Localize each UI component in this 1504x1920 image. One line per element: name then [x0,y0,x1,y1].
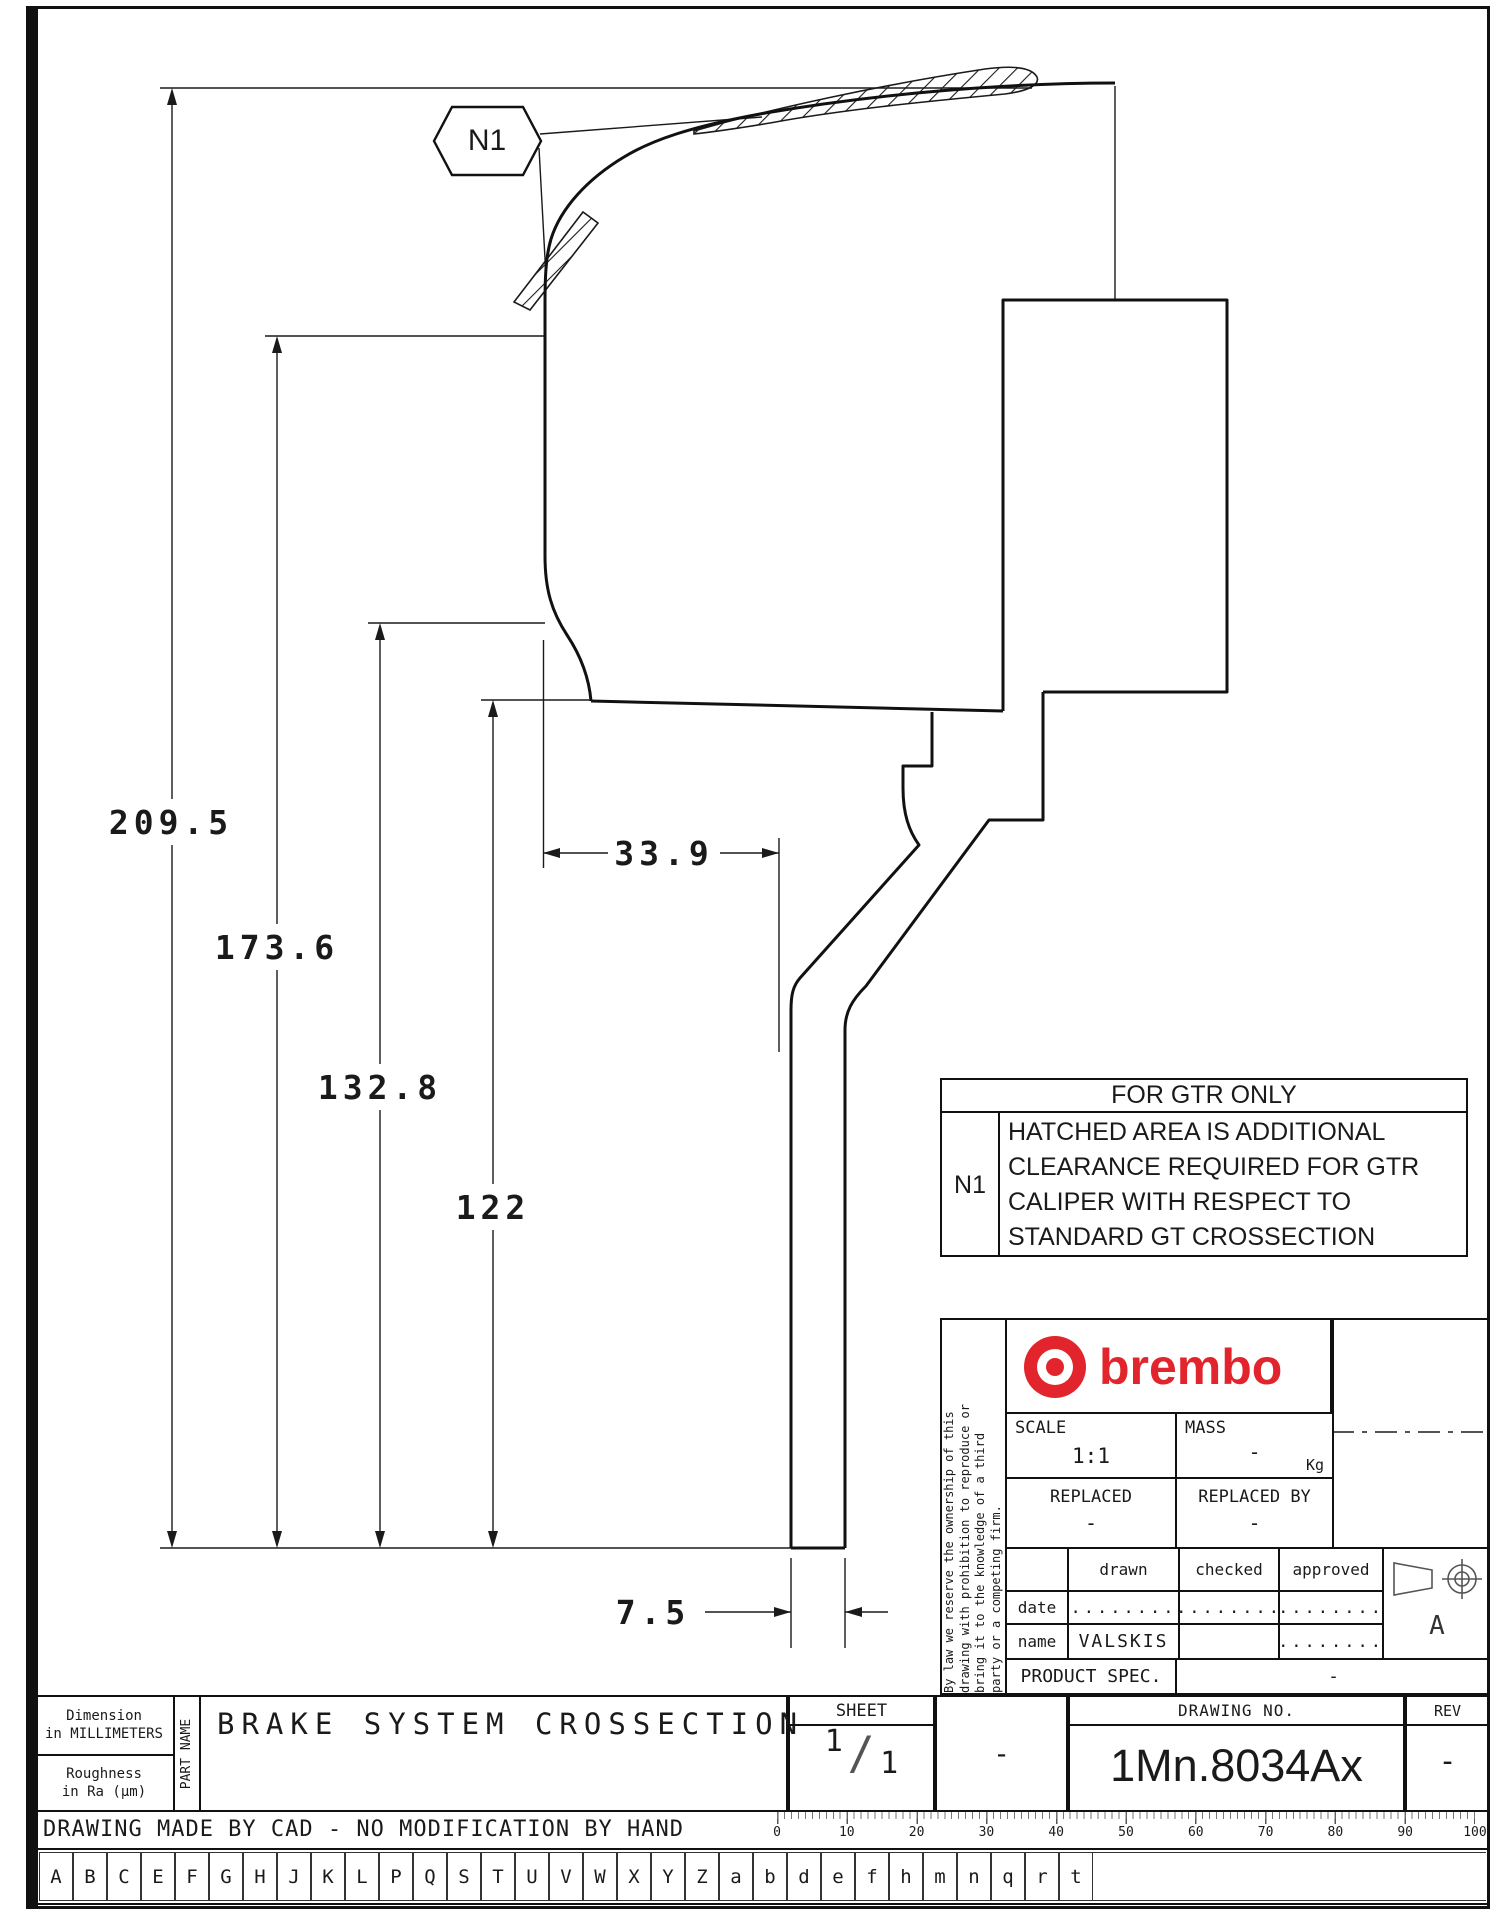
gtr-note-header: FOR GTR ONLY [942,1080,1466,1113]
sheet-slash: / [848,1728,875,1781]
letter-cell: J [277,1852,311,1901]
replaced-label: REPLACED [1007,1479,1175,1507]
titleblock-spare-zone [1332,1320,1490,1549]
letter-cell: Z [685,1852,719,1901]
product-spec-label: PRODUCT SPEC. [1007,1660,1177,1693]
date-checked: ........ [1180,1592,1280,1625]
sheet-value: 1 / 1 [790,1726,933,1769]
part-name-label: PART NAME [175,1696,199,1812]
dim-173-6: 173.6 [215,924,339,970]
svg-text:brembo: brembo [1099,1339,1282,1395]
gtr-note-table: FOR GTR ONLY N1 HATCHED AREA IS ADDITION… [940,1078,1468,1257]
letter-cell: Y [651,1852,685,1901]
part-name-label-cell: PART NAME [173,1695,201,1812]
letter-cell: K [311,1852,345,1901]
name-drawn: VALSKIS [1069,1625,1180,1660]
letter-cell: S [447,1852,481,1901]
ruler-number: 60 [1166,1825,1226,1845]
gtr-note-line: STANDARD GT CROSSECTION [1008,1220,1466,1255]
page-border-bottom [26,1906,1490,1909]
letter-cell: m [923,1852,957,1901]
dim-209-5: 209.5 [110,799,232,845]
mass-label: MASS [1177,1414,1332,1438]
dim-122: 122 [450,1184,536,1230]
letter-cell: n [957,1852,991,1901]
letters-row: A B C E F G H J K L P Q S T U V W X Y Z … [33,1850,1490,1905]
units-line1: Dimension [35,1707,173,1725]
disclaimer-line: party or a competing firm. [989,1320,1005,1693]
col-drawn: drawn [1069,1549,1180,1592]
letter-cell: U [515,1852,549,1901]
letter-cell: f [855,1852,889,1901]
drawing-no-value: 1Mn.8034Ax [1070,1726,1403,1792]
gtr-note-line: CALIPER WITH RESPECT TO [1008,1185,1466,1220]
dim-33-9: 33.9 [608,831,720,875]
name-approved: ........ [1280,1625,1382,1660]
sheet-num: 1 [825,1724,843,1759]
letter-cell: q [991,1852,1025,1901]
projection-symbol-icon [1384,1549,1490,1609]
ruler-number: 10 [817,1825,877,1845]
row-date-label: date [1007,1592,1069,1625]
mass-unit: Kg [1306,1456,1324,1474]
ruler-number: 30 [956,1825,1016,1845]
brembo-logo-cell: brembo brembo [1007,1320,1332,1414]
letter-cell: F [175,1852,209,1901]
footer-strip: Dimension in MILLIMETERS Roughness in Ra… [33,1695,1490,1812]
n1-callout-label: N1 [460,124,514,158]
scale-value: 1:1 [1007,1444,1175,1468]
rev-value: - [1407,1726,1488,1779]
ruler-number: 50 [1096,1825,1156,1845]
part-name: BRAKE SYSTEM CROSSECTION [201,1697,786,1741]
projection-letter: A [1384,1611,1490,1641]
replaced-by-cell: REPLACED BY - [1177,1479,1332,1549]
disclaimer-strip: By law we reserve the ownership of this … [942,1320,1007,1693]
scale-ruler: 0 10 20 30 40 50 60 70 80 90 100 [777,1812,1475,1846]
brembo-logo: brembo [1007,1320,1332,1414]
cad-note-row: DRAWING MADE BY CAD - NO MODIFICATION BY… [33,1812,1490,1850]
rev-cell: REV - [1405,1695,1490,1812]
ruler-number: 20 [887,1825,947,1845]
ruler-number: 0 [747,1825,807,1845]
gtr-note-line: HATCHED AREA IS ADDITIONAL [1008,1115,1466,1150]
letter-cell: t [1059,1852,1093,1901]
disclaimer-line: bring it to the knowledge of a third [973,1320,989,1693]
letter-cell: h [889,1852,923,1901]
sheet-den: 1 [880,1746,898,1781]
date-approved: ........ [1280,1592,1382,1625]
sheet-dash-cell: - [935,1695,1068,1812]
ruler-number: 80 [1305,1825,1365,1845]
projection-cell: A [1382,1549,1490,1660]
letter-cell: X [617,1852,651,1901]
letter-cell: r [1025,1852,1059,1901]
sheet-label: SHEET [790,1697,933,1726]
letter-cell: E [141,1852,175,1901]
letter-cell: T [481,1852,515,1901]
letter-cell: e [821,1852,855,1901]
letter-cell: L [345,1852,379,1901]
replaced-by-value: - [1177,1511,1332,1535]
replaced-by-label: REPLACED BY [1177,1479,1332,1507]
dim-132-8: 132.8 [318,1064,442,1110]
letters-row-filler [1093,1852,1486,1901]
letter-cell: W [583,1852,617,1901]
mass-cell: MASS - Kg [1177,1414,1332,1479]
sheet-cell: SHEET 1 / 1 [788,1695,935,1812]
replaced-value: - [1007,1511,1175,1535]
ruler-number: 90 [1375,1825,1435,1845]
part-name-cell: BRAKE SYSTEM CROSSECTION [199,1695,788,1812]
ruler-number: 40 [1026,1825,1086,1845]
roughness-line1: Roughness [35,1765,173,1783]
roughness-cell: Roughness in Ra (µm) [33,1754,175,1812]
roughness-line2: in Ra (µm) [35,1783,173,1801]
drawing-no-cell: DRAWING NO. 1Mn.8034Ax [1068,1695,1405,1812]
letter-cell: d [787,1852,821,1901]
letter-cell: a [719,1852,753,1901]
letter-cell: G [209,1852,243,1901]
page-border-left [26,6,38,1909]
scale-label: SCALE [1007,1414,1175,1438]
letter-cell: H [243,1852,277,1901]
letter-cell: b [753,1852,787,1901]
product-spec-value: - [1177,1660,1490,1693]
title-block: By law we reserve the ownership of this … [940,1318,1490,1695]
ruler-number: 70 [1236,1825,1296,1845]
gtr-note-ref: N1 [942,1113,1000,1257]
page-border-top [26,6,1490,9]
letter-cell: V [549,1852,583,1901]
rev-label: REV [1407,1697,1488,1726]
letter-cell: C [107,1852,141,1901]
disclaimer-line: drawing with prohibition to reproduce or [958,1320,974,1693]
disclaimer-line: By law we reserve the ownership of this [942,1320,958,1693]
row-name-label: name [1007,1625,1069,1660]
units-line2: in MILLIMETERS [35,1725,173,1743]
replaced-cell: REPLACED - [1007,1479,1177,1549]
ruler-number: 100 [1445,1825,1504,1845]
dim-7-5: 7.5 [608,1590,698,1634]
gtr-note-line: CLEARANCE REQUIRED FOR GTR [1008,1150,1466,1185]
units-cell: Dimension in MILLIMETERS [33,1695,175,1756]
letter-cell: B [73,1852,107,1901]
col-approved: approved [1280,1549,1382,1592]
date-drawn: ........ [1069,1592,1180,1625]
letter-cell: Q [413,1852,447,1901]
letter-cell: P [379,1852,413,1901]
letter-cell: A [39,1852,73,1901]
col-checked: checked [1180,1549,1280,1592]
hatched-area-top [694,67,1037,134]
scale-cell: SCALE 1:1 [1007,1414,1177,1479]
page-border-right [1487,6,1490,1909]
drawing-sheet: 209.5 173.6 132.8 122 33.9 7.5 N1 FOR GT… [0,0,1504,1920]
drawing-no-label: DRAWING NO. [1070,1697,1403,1726]
